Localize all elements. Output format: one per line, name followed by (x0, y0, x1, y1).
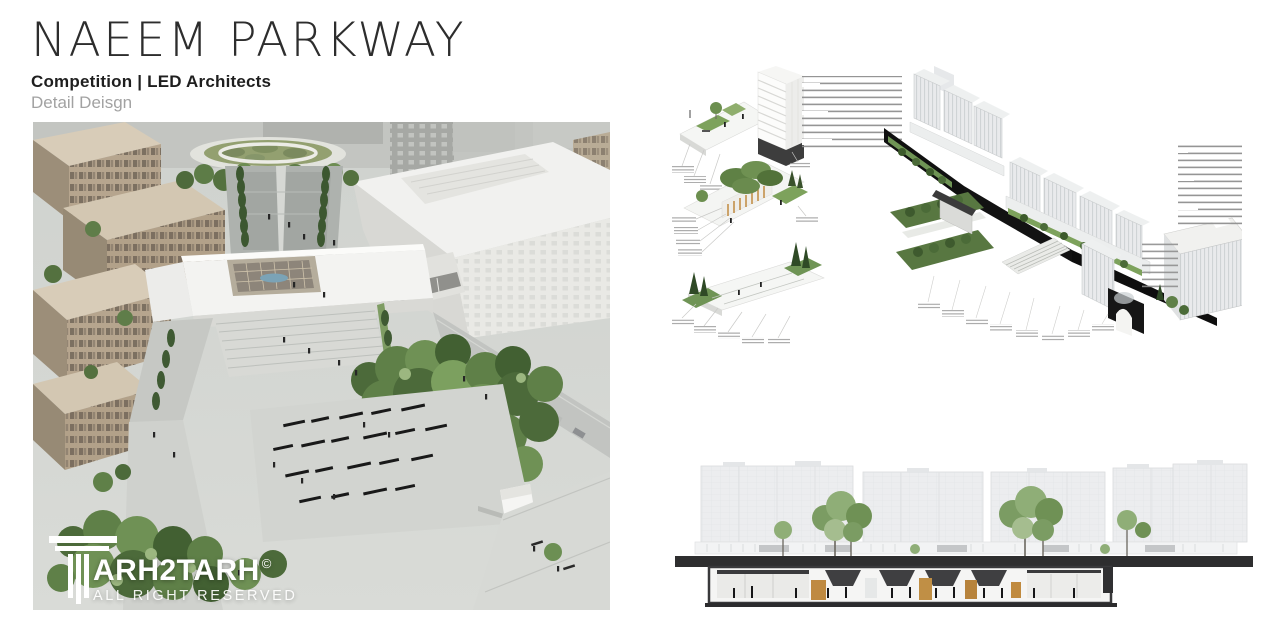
ground-cut-band (675, 556, 1253, 567)
brand-name: ARH2TARH (93, 554, 260, 587)
aerial-render-image: ARH2TARH© ALL RIGHT RESERVED (33, 122, 610, 610)
diagram-cypress-plaza (672, 242, 824, 345)
header: NAEEM PARKWAY Competition | LED Architec… (31, 16, 466, 113)
section-elevation-image (675, 452, 1253, 608)
underground-gallery (705, 567, 1117, 607)
axonometric-diagram-panel (672, 66, 1242, 348)
diagram-parkway-axonometric (884, 66, 1242, 341)
diagram-c-labels (672, 304, 790, 345)
project-subtitle: Competition | LED Architects (31, 72, 466, 92)
bench-plaza (250, 384, 533, 542)
timber-door (1011, 582, 1021, 598)
page-title: NAEEM PARKWAY (31, 16, 466, 67)
tarh2tarh-watermark: ARH2TARH© ALL RIGHT RESERVED (49, 536, 309, 608)
diagram-greenroof-pavilion (672, 161, 818, 256)
sheet-label: Detail Deisgn (31, 93, 466, 113)
timber-door (919, 578, 932, 600)
timber-door (811, 580, 826, 600)
timber-door (965, 580, 977, 599)
farsi-paragraph-right (1178, 144, 1242, 228)
rights-tagline: ALL RIGHT RESERVED (93, 588, 297, 604)
watermark-text: ARH2TARH© ALL RIGHT RESERVED (93, 556, 297, 604)
portfolio-page: NAEEM PARKWAY Competition | LED Architec… (0, 0, 1280, 640)
copyright-symbol: © (262, 556, 272, 571)
podium-band (695, 542, 1237, 554)
